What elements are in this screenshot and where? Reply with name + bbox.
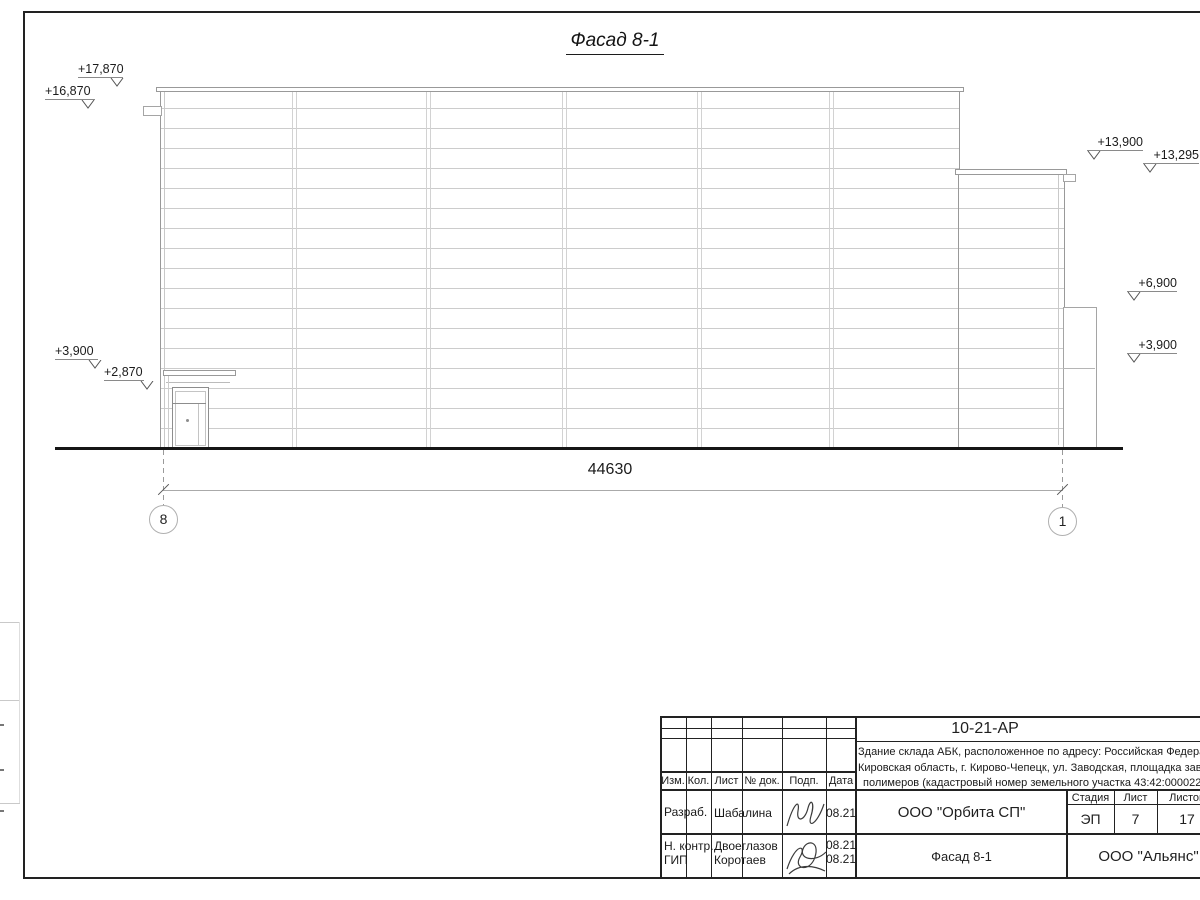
level-mark-17870: +17,870	[78, 62, 123, 78]
sheet-value: 7	[1114, 811, 1157, 827]
door-canopy-line	[166, 382, 230, 383]
doc-number: 10-21-АР	[856, 720, 1114, 738]
level-mark-16870: +16,870	[45, 84, 95, 100]
level-arrow-icon	[1143, 164, 1157, 173]
parapet-cap-main	[156, 87, 964, 92]
sheets-value: 17	[1157, 811, 1200, 827]
panel-joint	[562, 92, 567, 447]
dimension-label: 44630	[560, 461, 660, 479]
left-edge-line	[0, 803, 20, 804]
row-date: 08.21	[826, 838, 856, 852]
grid-bubble-1: 1	[1048, 507, 1077, 536]
level-mark-13295: +13,295	[1143, 148, 1199, 164]
panel-joint	[292, 92, 297, 447]
stage-label: Стадия	[1067, 792, 1114, 804]
level-arrow-icon	[110, 78, 124, 87]
level-label: +13,295	[1153, 148, 1199, 162]
level-label: +13,900	[1097, 135, 1143, 149]
titleblock-line	[660, 833, 1200, 835]
dimension-line	[163, 490, 1063, 491]
row-date: 08.21	[826, 852, 856, 866]
door-handle	[186, 419, 189, 422]
org-name: ООО "Орбита СП"	[856, 804, 1067, 821]
level-arrow-icon	[88, 360, 102, 369]
level-arrow-icon	[1127, 292, 1141, 301]
axis-line-8	[163, 450, 164, 507]
door-leaf-split	[198, 404, 199, 446]
row-role-nkontr: Н. контр.	[664, 839, 714, 853]
grid-bubble-8: 8	[149, 505, 178, 534]
level-mark-6900: +6,900	[1127, 276, 1177, 292]
col-header-kol: Кол.	[686, 775, 711, 787]
facade-edge-line	[164, 91, 165, 447]
description-line: Кировская область, г. Кирово-Чепецк, ул.…	[858, 761, 1200, 777]
signature-korotaev	[782, 836, 828, 878]
description-line: Здание склада АБК, расположенное по адре…	[858, 745, 1200, 761]
row-role-gip: ГИП	[664, 853, 688, 867]
project-description: Здание склада АБК, расположенное по адре…	[858, 745, 1200, 792]
level-label: +3,900	[1138, 338, 1177, 352]
description-line: полимеров (кадастровый номер земельного …	[858, 776, 1200, 792]
col-header-izm: Изм.	[660, 775, 686, 787]
col-header-doc: № док.	[742, 775, 782, 787]
door-canopy	[163, 370, 236, 376]
left-edge-line	[0, 622, 20, 623]
signature-shabalina	[784, 794, 826, 832]
facade-wall-main	[160, 88, 960, 450]
row-name-korotaev: Коротаев	[714, 853, 766, 867]
left-edge-mark	[0, 810, 4, 812]
door-inner-frame	[175, 391, 206, 446]
annex-mid-line	[1063, 368, 1095, 369]
panel-joint	[426, 92, 431, 447]
level-mark-2870: +2,870	[104, 365, 144, 381]
axis-line-1	[1062, 450, 1063, 507]
stage-value: ЭП	[1067, 811, 1114, 827]
contractor-name: ООО "Альянс"	[1067, 848, 1200, 865]
ground-line	[55, 447, 1123, 450]
sheet-label: Лист	[1114, 792, 1157, 804]
titleblock-line	[660, 716, 1200, 718]
titleblock-line	[711, 716, 712, 878]
level-arrow-icon	[1127, 354, 1141, 363]
left-edge-line	[0, 700, 20, 701]
row-role-razrab: Разраб.	[664, 805, 707, 819]
col-header-list: Лист	[711, 775, 742, 787]
sheet-frame-bottom	[23, 877, 1200, 879]
level-mark-3900-left: +3,900	[55, 344, 98, 360]
page-title-text: Фасад 8-1	[566, 30, 665, 55]
titleblock-line	[660, 716, 662, 879]
level-label: +16,870	[45, 84, 91, 98]
level-arrow-icon	[140, 381, 154, 390]
level-mark-3900-right: +3,900	[1127, 338, 1177, 354]
col-header-data: Дата	[826, 775, 856, 787]
level-label: +17,870	[78, 62, 124, 76]
sheets-label: Листов	[1157, 792, 1200, 804]
left-edge-mark	[0, 724, 4, 726]
level-arrow-icon	[81, 100, 95, 109]
titleblock-line	[856, 741, 1200, 742]
col-header-podp: Подп.	[782, 775, 826, 787]
parapet-flashing-right	[1063, 174, 1076, 182]
level-label: +2,870	[104, 365, 143, 379]
panel-joint	[829, 92, 834, 447]
level-arrow-icon	[1087, 151, 1101, 160]
sheet-frame-left	[23, 11, 25, 879]
drawing-sheet: Фасад 8-1 +17,870 +16,870 +3,900 +2,870	[0, 0, 1200, 900]
sheet-frame-top	[23, 11, 1200, 13]
level-mark-13900: +13,900	[1087, 135, 1143, 151]
row-name-dvoeglazov: Двоеглазов	[714, 839, 778, 853]
annex-right	[1063, 307, 1097, 450]
row-name-shabalina: Шабалина	[714, 806, 772, 820]
row-date: 08.21	[826, 806, 856, 820]
left-edge-line	[19, 622, 20, 803]
canopy-post-line	[168, 376, 169, 447]
door-transom-line	[173, 403, 206, 404]
page-title: Фасад 8-1	[545, 30, 685, 55]
level-label: +3,900	[55, 344, 94, 358]
parapet-flashing-left	[143, 106, 162, 116]
titleblock-line	[1067, 804, 1200, 805]
drawing-name: Фасад 8-1	[856, 849, 1067, 864]
facade-edge-line	[1058, 173, 1059, 445]
level-label: +6,900	[1138, 276, 1177, 290]
facade-wall-low	[958, 170, 1065, 450]
parapet-cap-low	[955, 169, 1067, 175]
left-edge-mark	[0, 769, 4, 771]
panel-joint	[697, 92, 702, 447]
